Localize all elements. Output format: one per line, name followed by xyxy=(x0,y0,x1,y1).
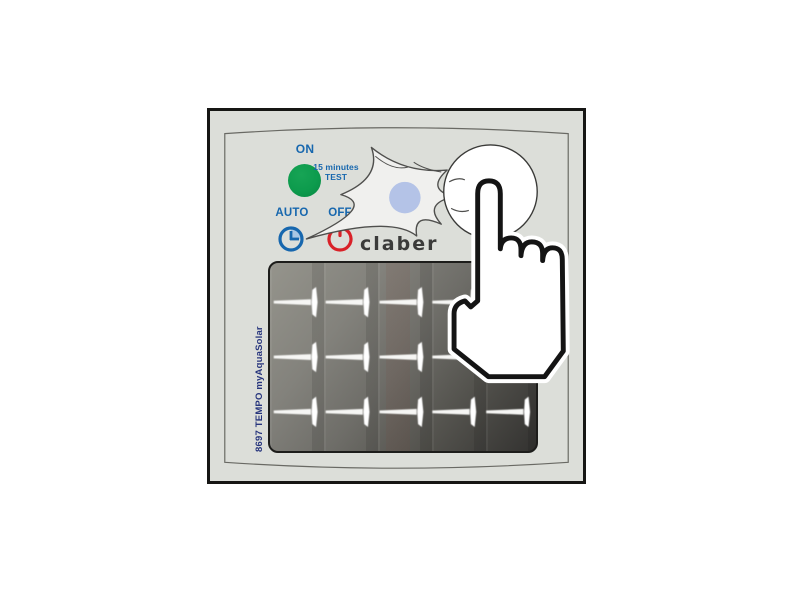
t-mark xyxy=(380,287,424,317)
t-mark xyxy=(326,342,370,372)
solar-panel xyxy=(268,261,538,453)
solar-panel-texture xyxy=(270,263,536,451)
test-duration-line2: TEST xyxy=(325,172,347,182)
brand-logo: claber xyxy=(360,233,455,255)
off-label: OFF xyxy=(318,207,362,219)
highlight-circle xyxy=(444,145,537,238)
power-icon xyxy=(323,222,357,256)
test-duration-label: 15 minutes TEST xyxy=(308,163,364,183)
t-mark xyxy=(380,397,424,427)
timer-device-faceplate: ON 15 minutes TEST AUTO OFF claber xyxy=(207,108,586,484)
t-mark xyxy=(486,287,530,317)
t-mark xyxy=(432,287,476,317)
t-mark xyxy=(274,342,318,372)
t-mark xyxy=(274,287,318,317)
t-mark xyxy=(274,397,318,427)
model-label: 8697 TEMPO myAquaSolar xyxy=(254,300,267,452)
t-mark xyxy=(326,287,370,317)
clock-icon xyxy=(274,222,308,256)
on-label: ON xyxy=(288,142,322,156)
t-mark xyxy=(380,342,424,372)
manual-illustration: ON 15 minutes TEST AUTO OFF claber xyxy=(0,0,800,600)
t-mark xyxy=(486,342,530,372)
auto-label: AUTO xyxy=(270,207,314,219)
test-duration-line1: 15 minutes xyxy=(313,162,358,172)
t-mark xyxy=(432,397,476,427)
t-mark xyxy=(432,342,476,372)
t-mark xyxy=(326,397,370,427)
test-button[interactable] xyxy=(389,182,420,213)
t-mark xyxy=(486,397,530,427)
